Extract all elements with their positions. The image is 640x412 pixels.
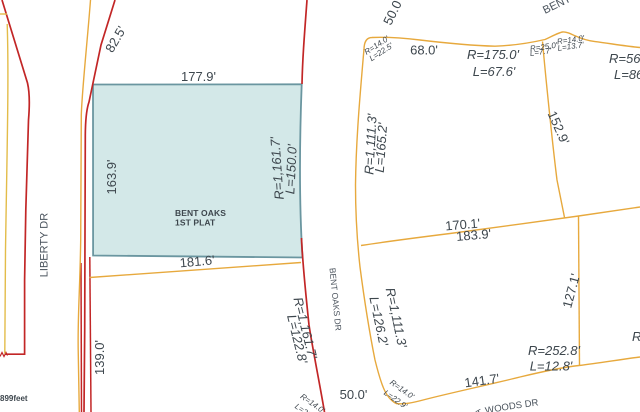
svg-text:BENT OAKS: BENT OAKS (175, 208, 226, 218)
svg-text:L=866': L=866' (614, 67, 640, 82)
svg-text:R=1: R=1 (632, 329, 640, 344)
svg-text:L=12.8': L=12.8' (530, 359, 573, 374)
svg-text:183.9': 183.9' (456, 226, 492, 244)
svg-text:L=150.0': L=150.0' (282, 143, 300, 194)
svg-text:899feet: 899feet (0, 394, 28, 403)
svg-text:R=566': R=566' (609, 51, 640, 66)
svg-text:LIBERTY DR: LIBERTY DR (39, 213, 51, 277)
svg-text:177.9': 177.9' (181, 69, 216, 84)
svg-text:1ST PLAT: 1ST PLAT (175, 218, 216, 228)
svg-text:181.6': 181.6' (179, 252, 215, 270)
svg-text:R=175.0': R=175.0' (467, 47, 520, 62)
svg-text:139.0': 139.0' (92, 340, 107, 375)
svg-text:50.0': 50.0' (340, 387, 368, 402)
svg-text:163.9': 163.9' (104, 159, 119, 194)
svg-text:68.0': 68.0' (410, 43, 438, 58)
svg-text:L=67.6': L=67.6' (473, 64, 516, 79)
svg-text:R=252.8': R=252.8' (528, 343, 581, 358)
